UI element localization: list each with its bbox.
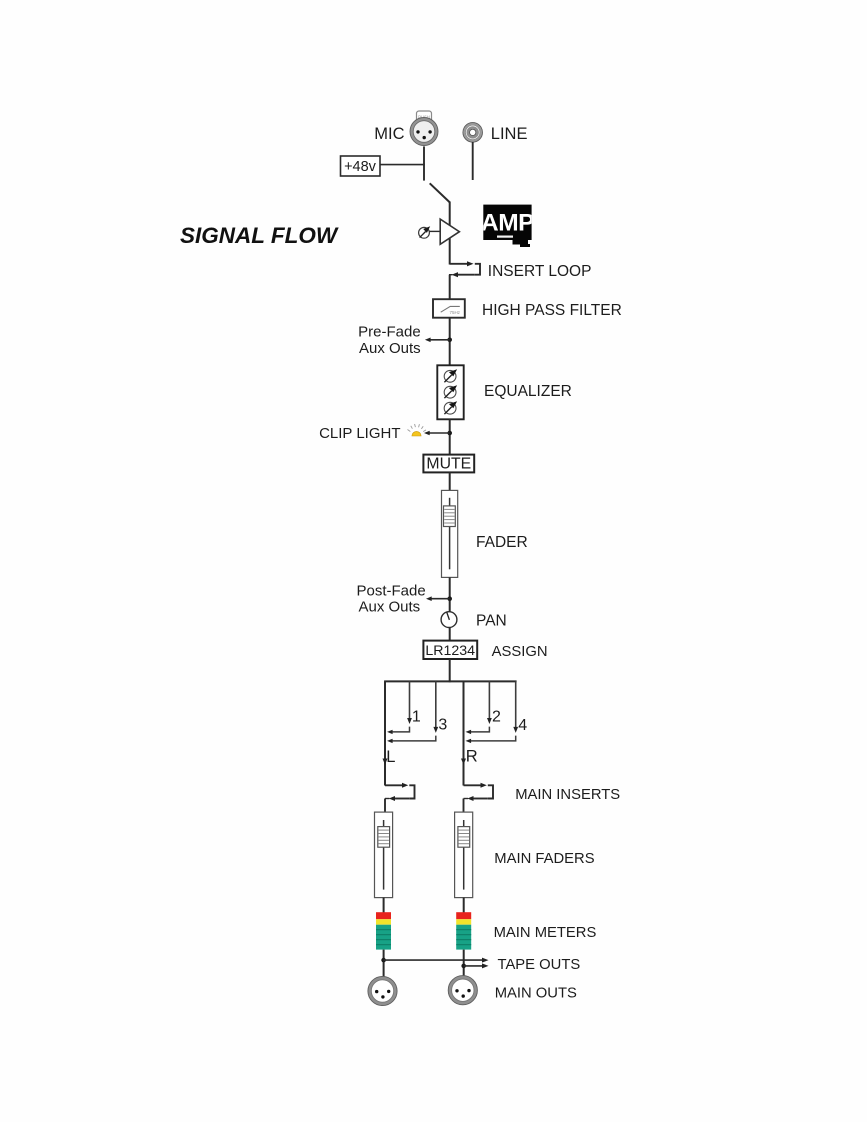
svg-text:FADER: FADER bbox=[476, 534, 528, 551]
svg-text:MAIN METERS: MAIN METERS bbox=[494, 925, 597, 941]
svg-text:HIGH PASS FILTER: HIGH PASS FILTER bbox=[482, 302, 622, 319]
svg-text:R: R bbox=[466, 747, 478, 765]
svg-text:MAIN FADERS: MAIN FADERS bbox=[494, 851, 594, 867]
svg-text:75Hz: 75Hz bbox=[450, 310, 461, 315]
svg-text:AMP: AMP bbox=[481, 210, 534, 237]
svg-text:+48v: +48v bbox=[344, 159, 377, 175]
svg-text:Aux Outs: Aux Outs bbox=[358, 599, 420, 616]
svg-text:2: 2 bbox=[492, 708, 501, 725]
svg-text:L: L bbox=[386, 748, 395, 766]
svg-text:TAPE OUTS: TAPE OUTS bbox=[498, 957, 581, 973]
svg-text:LR1234: LR1234 bbox=[425, 643, 475, 659]
svg-text:MIC: MIC bbox=[374, 125, 404, 143]
svg-text:SIGNAL FLOW: SIGNAL FLOW bbox=[180, 223, 339, 248]
svg-text:LINE: LINE bbox=[491, 125, 528, 143]
svg-text:Pre-Fade: Pre-Fade bbox=[358, 323, 421, 340]
svg-text:4: 4 bbox=[518, 717, 527, 734]
svg-text:PAN: PAN bbox=[476, 613, 507, 630]
svg-text:3: 3 bbox=[438, 717, 447, 734]
svg-text:INSERT LOOP: INSERT LOOP bbox=[488, 263, 592, 280]
svg-text:MUTE: MUTE bbox=[426, 456, 471, 473]
svg-text:1: 1 bbox=[412, 708, 421, 725]
svg-text:Post-Fade: Post-Fade bbox=[356, 583, 425, 600]
svg-text:MAIN INSERTS: MAIN INSERTS bbox=[515, 787, 620, 803]
svg-text:ASSIGN: ASSIGN bbox=[492, 644, 548, 660]
svg-text:MAIN OUTS: MAIN OUTS bbox=[495, 986, 577, 1002]
svg-text:CLIP LIGHT: CLIP LIGHT bbox=[319, 425, 400, 442]
svg-text:Aux Outs: Aux Outs bbox=[359, 340, 421, 357]
svg-text:EQUALIZER: EQUALIZER bbox=[484, 383, 572, 400]
